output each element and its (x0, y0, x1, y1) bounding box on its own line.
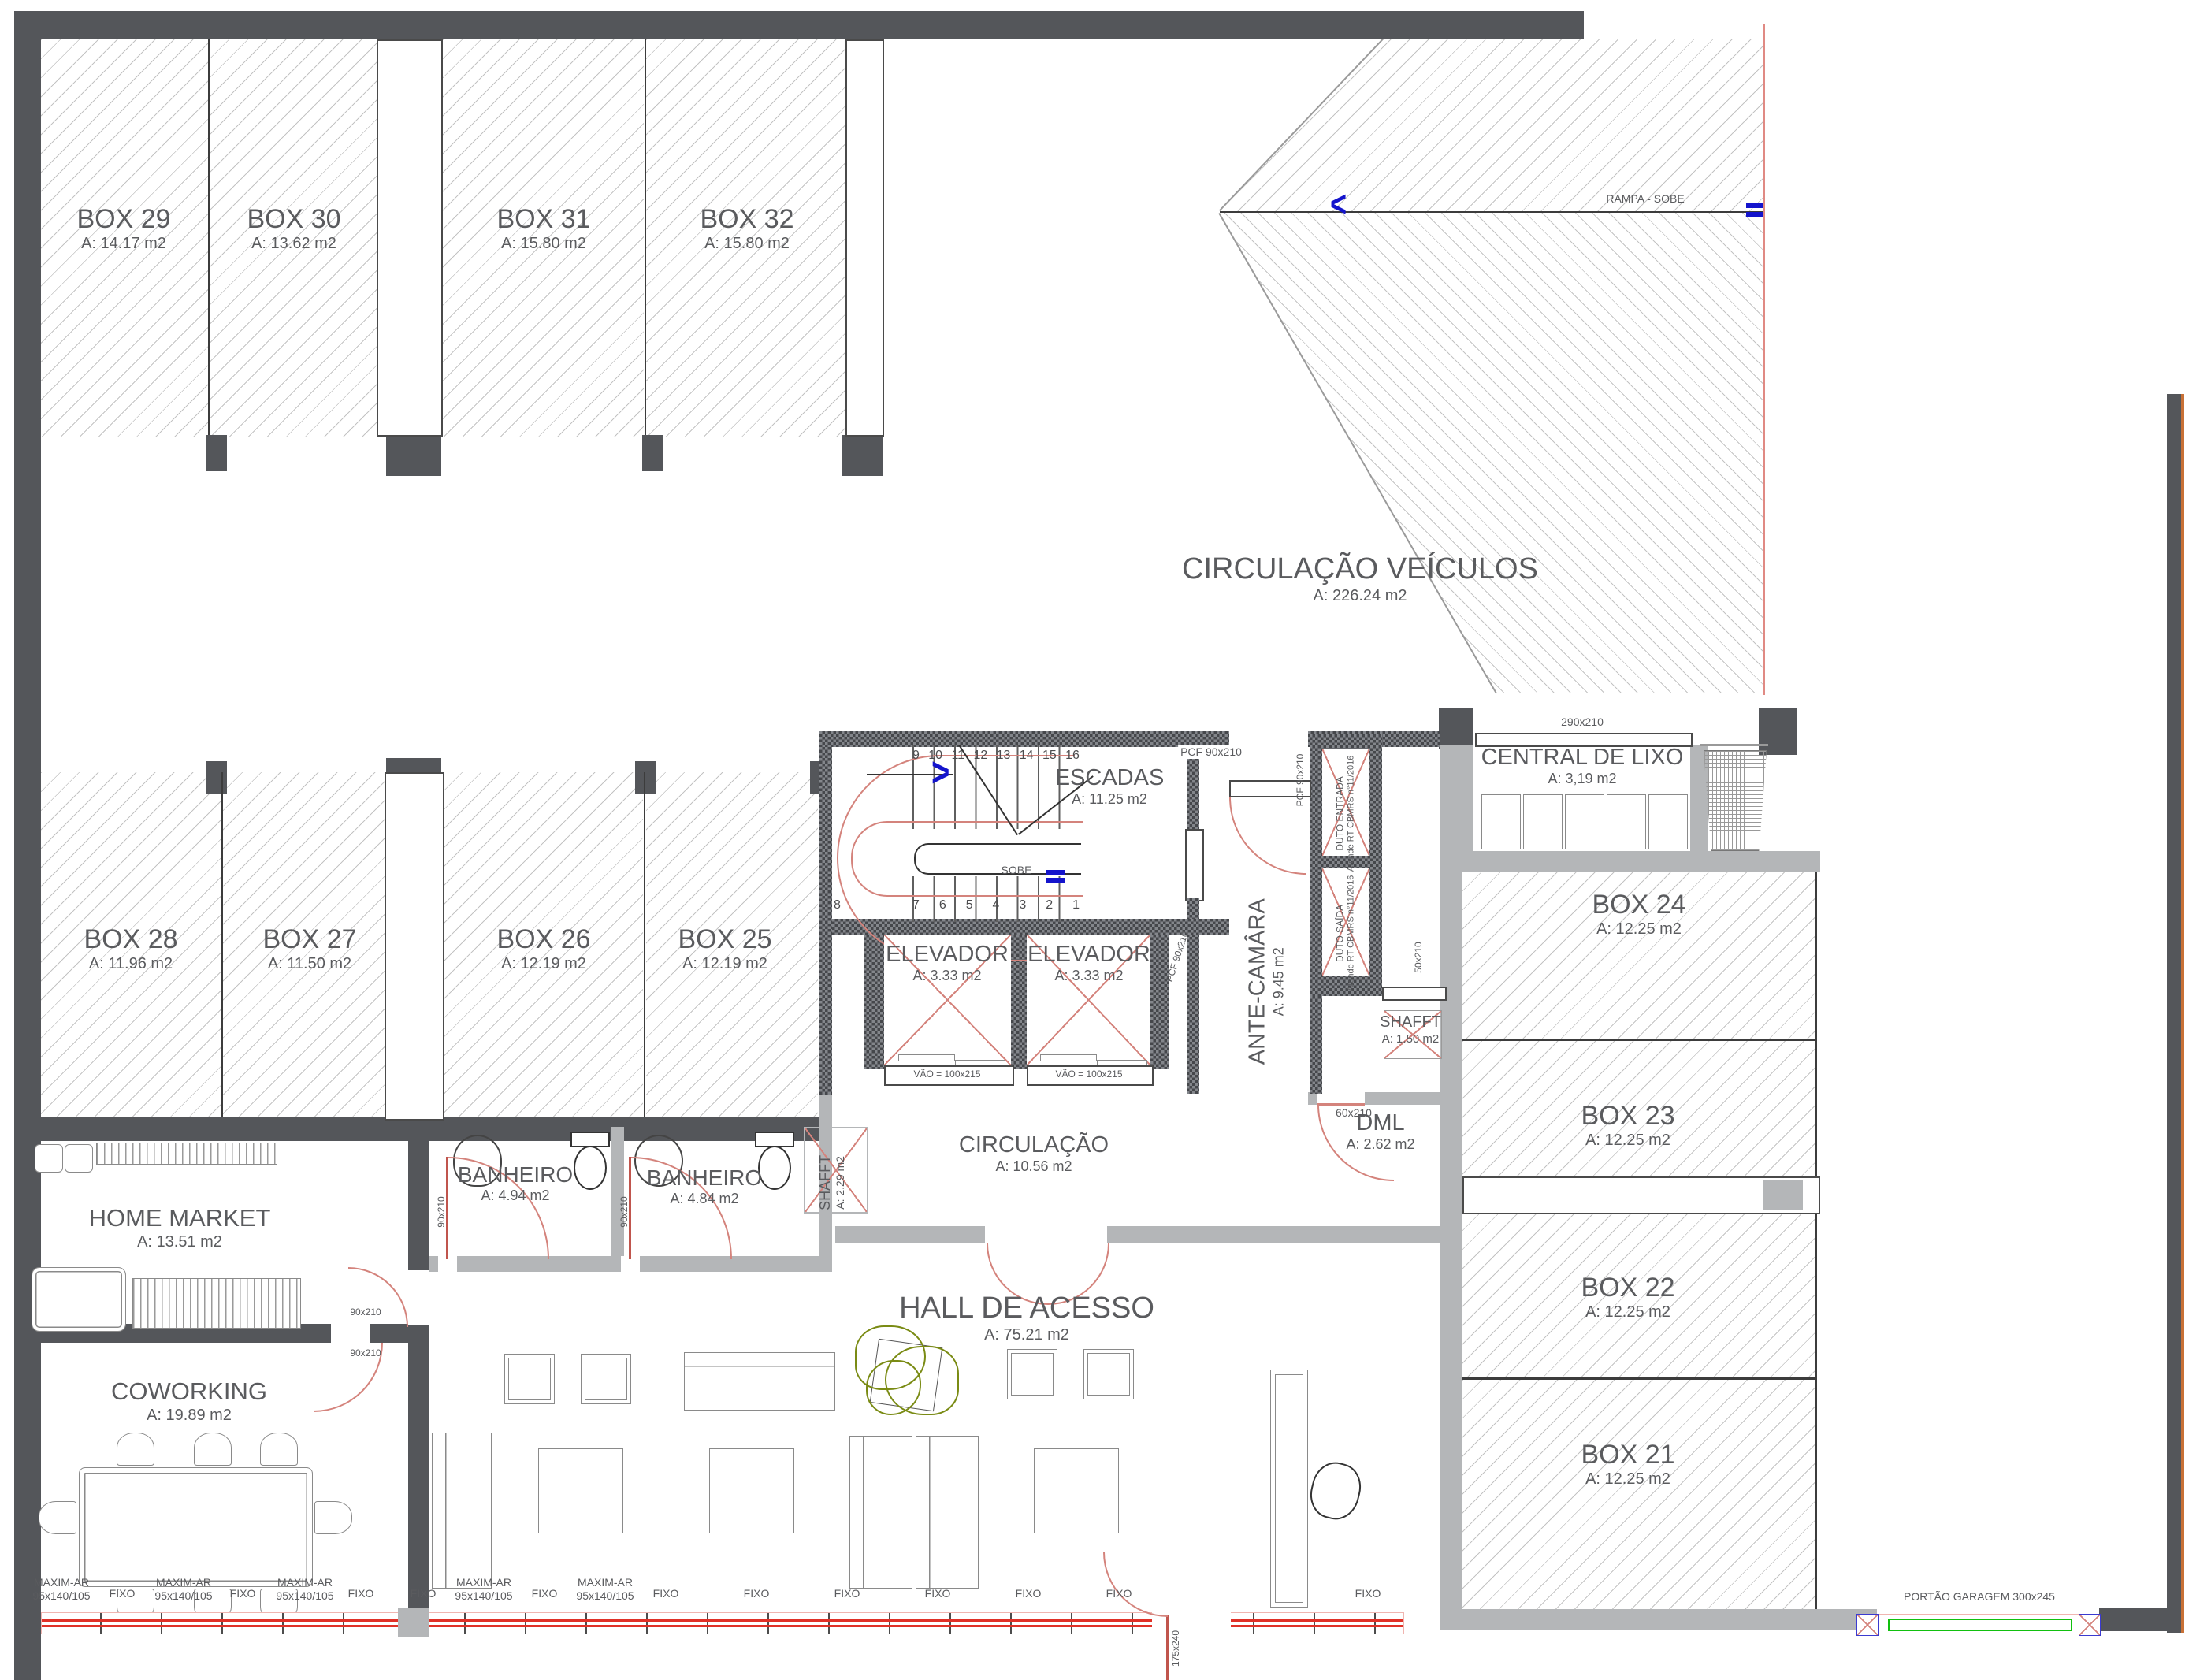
stair-number: 15 (1042, 749, 1057, 764)
room-name: ANTE-CAMÂRA (1243, 856, 1270, 1108)
wall-banheiro-bottom-a (429, 1256, 438, 1272)
window-label: FIXO (1355, 1587, 1381, 1600)
window-label: FIXO (230, 1587, 256, 1600)
elevator2-vao-label: VÃO = 100x215 (1055, 1069, 1122, 1080)
room-name: SHAFFT (1380, 1013, 1441, 1032)
elev-wall-right (1150, 935, 1169, 1069)
window-label: FIXO (348, 1587, 374, 1600)
window-size: 95x140/105 (576, 1589, 634, 1603)
room-label-shafft-small: SHAFFT A: 1.50 m2 (1380, 1013, 1441, 1046)
room-area: A: 19.89 m2 (111, 1407, 267, 1425)
room-label-banheiro-1: BANHEIRO A: 4.94 m2 (458, 1162, 573, 1204)
room-name: HOME MARKET (89, 1204, 271, 1233)
entrance-door-leaf (1166, 1615, 1169, 1680)
wall-hall-west-b (408, 1325, 429, 1617)
room-name: SHAFFT (817, 1120, 834, 1246)
partition-box30-31 (377, 39, 443, 437)
partition-box27-26 (385, 772, 444, 1121)
room-area: A: 12.19 m2 (496, 955, 590, 974)
room-name: BOX 27 (262, 924, 356, 955)
room-area: A: 12.25 m2 (1581, 1470, 1674, 1489)
room-label-elevador-2: ELEVADOR A: 3.33 m2 (1028, 941, 1150, 984)
banheiro2-toilet-tank (755, 1132, 794, 1147)
room-area: A: 2.62 m2 (1346, 1136, 1414, 1153)
window-label: FIXO (532, 1587, 558, 1600)
ramp-right-line (1763, 24, 1765, 695)
room-label-circulacao-veiculos: CIRCULAÇÃO VEÍCULOS A: 226.24 m2 (1182, 552, 1538, 605)
reception-desk (1270, 1370, 1308, 1608)
wall-hall-west-a (408, 1141, 429, 1270)
elevator2-door-leaf-a (1040, 1054, 1097, 1061)
room-name: COWORKING (111, 1377, 267, 1407)
banheiro1-toilet-tank (570, 1132, 610, 1147)
homemarket-shelf-top (96, 1143, 277, 1165)
room-area: A: 13.62 m2 (247, 235, 340, 254)
coworking-chair-8 (314, 1501, 352, 1534)
room-name: BOX 26 (496, 924, 590, 955)
room-label-box32: BOX 32 A: 15.80 m2 (700, 203, 793, 254)
lixo-bin-3 (1565, 794, 1604, 849)
floor-plan: < RAMPA - SOBE (0, 0, 2200, 1680)
homemarket-chair-1 (35, 1144, 63, 1173)
window-type: MAXIM-AR (276, 1576, 333, 1589)
wall-banheiro-divider (611, 1127, 624, 1256)
room-name: BOX 24 (1592, 889, 1685, 920)
wall-bottom-right (1440, 1609, 1877, 1630)
room-name: ESCADAS (1055, 764, 1165, 791)
window-label: MAXIM-AR95x140/105 (32, 1576, 90, 1602)
room-name: CENTRAL DE LIXO (1481, 744, 1684, 771)
lixo-bin-5 (1648, 794, 1688, 849)
lixo-bin-4 (1607, 794, 1646, 849)
coworking-chair-1 (117, 1433, 154, 1466)
window-size: 95x140/105 (154, 1589, 212, 1603)
ramp-label: RAMPA - SOBE (1606, 192, 1684, 206)
divider-box22-21 (1462, 1377, 1817, 1380)
wall-corridor-bottom-b (1107, 1226, 1442, 1243)
room-label-box24: BOX 24 A: 12.25 m2 (1592, 889, 1685, 939)
room-area: A: 13.51 m2 (89, 1233, 271, 1252)
room-area: A: 3.33 m2 (1028, 968, 1150, 984)
room-name: BANHEIRO (647, 1165, 762, 1191)
room-name: BOX 28 (84, 924, 177, 955)
hall-side-table-2 (709, 1448, 794, 1533)
room-name: BOX 30 (247, 203, 340, 235)
wall-lixo-left (1458, 745, 1473, 851)
stair-number: 3 (1019, 898, 1026, 914)
room-area: A: 2.29 m2 (834, 1120, 847, 1246)
window-type: MAXIM-AR (32, 1576, 90, 1589)
outer-wall-right-thin (2167, 394, 2181, 1633)
room-label-banheiro-2: BANHEIRO A: 4.84 m2 (647, 1165, 762, 1207)
door-label-coworking: 90x210 (350, 1347, 381, 1358)
ramp-arrow-bar-2 (1746, 212, 1763, 217)
room-name: BOX 25 (678, 924, 771, 955)
sobe-bar-1 (1046, 870, 1065, 875)
window-label: FIXO (834, 1587, 860, 1600)
window-label: FIXO (110, 1587, 136, 1600)
room-area: A: 15.80 m2 (700, 235, 793, 254)
entrance-door-size-label: 175x240 (1170, 1630, 1181, 1667)
garage-jamb-left (1856, 1614, 1879, 1636)
stair-up-chevron-icon: > (931, 749, 949, 797)
stair-number: 16 (1065, 749, 1080, 764)
wall-dml-top-a (1308, 1092, 1317, 1105)
divider-box28-27 (221, 772, 223, 1117)
hall-armchair-3 (1007, 1349, 1057, 1399)
room-area: A: 4.84 m2 (647, 1191, 762, 1207)
duct-label-saida: DUTO SAÍDA Atende RT CBMRS n°11/2016 (1335, 854, 1358, 1012)
hall-sofa-vertical-mid-2 (916, 1436, 979, 1589)
duct-note: Atende RT CBMRS n°11/2016 (1347, 854, 1358, 1012)
window-label: MAXIM-AR95x140/105 (455, 1576, 512, 1602)
door-label-50x210: 50x210 (1413, 942, 1424, 972)
wall-hall-east (1440, 745, 1462, 1611)
elevator1-door-leaf-a (898, 1054, 955, 1061)
room-label-box29: BOX 29 A: 14.17 m2 (76, 203, 170, 254)
room-label-box30: BOX 30 A: 13.62 m2 (247, 203, 340, 254)
pier-core-northeast (1439, 708, 1473, 749)
shafft-small-door-sill (1382, 987, 1447, 1001)
rightboxes-front-line (1815, 871, 1817, 1611)
stair-number-8: 8 (834, 898, 841, 913)
stair-number: 1 (1072, 898, 1080, 914)
room-name: BOX 21 (1581, 1439, 1674, 1470)
outer-wall-top (14, 11, 1584, 39)
door-label-pcf-ante: PCF 90x210 (1295, 754, 1306, 807)
banheiro1-toilet-bowl (574, 1146, 607, 1190)
stair-number: 4 (993, 898, 1000, 914)
room-name: CIRCULAÇÃO VEÍCULOS (1182, 552, 1538, 587)
room-name: ELEVADOR (1028, 941, 1150, 968)
hall-armchair-1 (504, 1354, 555, 1404)
room-area: A: 1.50 m2 (1380, 1032, 1441, 1046)
stair-number: 9 (912, 749, 920, 764)
window-label: MAXIM-AR95x140/105 (276, 1576, 333, 1602)
hall-sofa-vertical-left (432, 1433, 492, 1589)
room-label-hall: HALL DE ACESSO A: 75.21 m2 (899, 1291, 1154, 1344)
stair-sobe-label: SOBE (1002, 864, 1032, 877)
pier-mid-row-3 (635, 761, 656, 794)
outer-wall-right-orange-line (2181, 394, 2184, 1633)
window-label: FIXO (925, 1587, 951, 1600)
room-label-ante-camara: ANTE-CAMÂRA A: 9.45 m2 (1243, 856, 1287, 1108)
room-label-box23: BOX 23 A: 12.25 m2 (1581, 1100, 1674, 1150)
door-label-banheiro1: 90x210 (436, 1196, 447, 1227)
divider-box31-32 (645, 39, 646, 435)
room-area: A: 11.50 m2 (262, 955, 356, 974)
ramp-line (1220, 211, 1763, 213)
room-label-escadas: ESCADAS A: 11.25 m2 (1055, 764, 1165, 808)
window-label: FIXO (1016, 1587, 1042, 1600)
homemarket-shelf-bottom (132, 1278, 301, 1329)
room-name: BOX 23 (1581, 1100, 1674, 1132)
divider-box29-30 (208, 39, 210, 435)
hall-armchair-2 (581, 1354, 631, 1404)
room-name: BOX 22 (1581, 1272, 1674, 1303)
room-area: A: 12.25 m2 (1592, 920, 1685, 939)
coworking-chair-3 (260, 1433, 298, 1466)
room-name: CIRCULAÇÃO (959, 1132, 1109, 1158)
entrance-door-arc (1103, 1552, 1168, 1617)
pier-box23-22 (1763, 1180, 1803, 1210)
pier-window-band (398, 1608, 429, 1637)
hall-armchair-4 (1083, 1349, 1134, 1399)
door-label-homemarket: 90x210 (350, 1306, 381, 1318)
homemarket-chair-2 (65, 1144, 93, 1173)
stair-number: 7 (912, 898, 920, 914)
partition-right-of-box32 (845, 39, 884, 437)
room-label-box27: BOX 27 A: 11.50 m2 (262, 924, 356, 974)
window-size: 95x140/105 (455, 1589, 512, 1603)
homemarket-door-arc (348, 1267, 408, 1327)
outer-wall-left (14, 11, 41, 1680)
room-label-box22: BOX 22 A: 12.25 m2 (1581, 1272, 1674, 1322)
room-area: A: 12.25 m2 (1581, 1303, 1674, 1322)
room-area: A: 14.17 m2 (76, 235, 170, 254)
room-area: A: 10.56 m2 (959, 1158, 1109, 1175)
stair-number: 2 (1046, 898, 1053, 914)
coworking-chair-7 (39, 1501, 76, 1534)
wall-dml-top-b (1365, 1092, 1440, 1105)
room-label-box28: BOX 28 A: 11.96 m2 (84, 924, 177, 974)
room-label-elevador-1: ELEVADOR A: 3.33 m2 (886, 941, 1009, 984)
wall-corridor-bottom-a (835, 1226, 985, 1243)
lixo-bin-1 (1481, 794, 1521, 849)
room-name: HALL DE ACESSO (899, 1291, 1154, 1326)
divider-box24-23 (1462, 1039, 1817, 1041)
garage-jamb-right (2079, 1614, 2101, 1636)
pier-top-row-4 (842, 435, 883, 476)
dumpster-lid (1700, 744, 1768, 746)
room-area: A: 12.19 m2 (678, 955, 771, 974)
coworking-chair-2 (194, 1433, 232, 1466)
room-label-shafft-tall: SHAFFT A: 2.29 m2 (817, 1120, 847, 1246)
room-label-circulacao: CIRCULAÇÃO A: 10.56 m2 (959, 1132, 1109, 1175)
room-area: A: 11.25 m2 (1055, 791, 1165, 808)
window-type: MAXIM-AR (576, 1576, 634, 1589)
duct-wall-below (1310, 996, 1322, 1094)
room-area: A: 3.33 m2 (886, 968, 1009, 984)
lixo-bin-2 (1523, 794, 1563, 849)
stair-numbers-lower: 7 6 5 4 3 2 1 (912, 898, 1080, 914)
hall-side-table-3 (1034, 1448, 1119, 1533)
ramp-arrow-bar-1 (1746, 203, 1763, 208)
room-label-box25: BOX 25 A: 12.19 m2 (678, 924, 771, 974)
ramp-chevron-icon: < (1330, 183, 1347, 226)
sobe-bar-2 (1046, 878, 1065, 883)
wall-lixo-bottom (1462, 851, 1820, 872)
elev-wall-left (864, 935, 884, 1069)
coworking-table (79, 1467, 313, 1587)
stair-number: 6 (939, 898, 946, 914)
core-wall-top-a (819, 731, 1229, 747)
window-label: MAXIM-AR95x140/105 (154, 1576, 212, 1602)
room-area: A: 9.45 m2 (1270, 856, 1287, 1108)
window-type: MAXIM-AR (455, 1576, 512, 1589)
hall-sofa-horizontal (684, 1352, 835, 1411)
hall-sofa-vertical-mid-1 (849, 1436, 912, 1589)
door-label-pcf-stair: PCF 90x210 (1178, 745, 1244, 759)
window-label: FIXO (744, 1587, 770, 1600)
window-size: 95x140/105 (276, 1589, 333, 1603)
room-area: A: 3,19 m2 (1481, 771, 1684, 787)
banheiro2-toilet-bowl (758, 1146, 791, 1190)
homemarket-counter (32, 1267, 126, 1332)
stair-number: 5 (966, 898, 973, 914)
room-area: A: 11.96 m2 (84, 955, 177, 974)
window-type: MAXIM-AR (154, 1576, 212, 1589)
room-name: BOX 29 (76, 203, 170, 235)
pier-top-row-3 (642, 435, 663, 471)
box21-fill (1462, 1380, 1815, 1609)
core-wall-stair-right-a (1187, 747, 1199, 829)
window-size: 95x140/105 (32, 1589, 90, 1603)
garage-door-label: PORTÃO GARAGEM 300x245 (1904, 1590, 2055, 1604)
dumpster (1704, 750, 1767, 851)
pier-top-row-2 (386, 435, 441, 476)
dml-door-leaf (1317, 1103, 1365, 1106)
core-wall-left (819, 747, 832, 1095)
window-label: FIXO (653, 1587, 679, 1600)
room-label-box31: BOX 31 A: 15.80 m2 (496, 203, 590, 254)
stair-right-door-sill (1185, 829, 1204, 901)
pier-mid-row-1 (206, 761, 227, 794)
room-area: A: 15.80 m2 (496, 235, 590, 254)
window-label: MAXIM-AR95x140/105 (576, 1576, 634, 1602)
room-label-home-market: HOME MARKET A: 13.51 m2 (89, 1204, 271, 1251)
stair-number: 14 (1020, 749, 1034, 764)
stair-number: 12 (973, 749, 987, 764)
room-area: A: 4.94 m2 (458, 1188, 573, 1204)
pier-top-row-1 (206, 435, 227, 471)
door-label-60x210: 60x210 (1336, 1106, 1372, 1120)
ramp-lower-fill (1220, 213, 1763, 693)
corner-wall-bottom-right (2099, 1608, 2181, 1631)
door-label-banheiro2: 90x210 (619, 1196, 630, 1227)
room-name: BOX 31 (496, 203, 590, 235)
divider-box26-25 (644, 772, 645, 1117)
room-name: BOX 32 (700, 203, 793, 235)
door-label-290x210: 290x210 (1561, 715, 1604, 729)
wall-midrow-bottom (14, 1117, 819, 1141)
duct-name: DUTO SAÍDA (1335, 854, 1347, 1012)
room-area: A: 75.21 m2 (899, 1326, 1154, 1345)
reception-chair (1305, 1458, 1366, 1525)
window-label: FIXO (1106, 1587, 1132, 1600)
room-label-coworking: COWORKING A: 19.89 m2 (111, 1377, 267, 1425)
room-label-box21: BOX 21 A: 12.25 m2 (1581, 1439, 1674, 1489)
room-name: ELEVADOR (886, 941, 1009, 968)
pier-right-lane (1759, 708, 1797, 755)
elevator1-vao-label: VÃO = 100x215 (913, 1069, 980, 1080)
room-name: BANHEIRO (458, 1162, 573, 1188)
hall-side-table-1 (538, 1448, 623, 1533)
window-label: FIXO (411, 1587, 437, 1600)
room-label-central-lixo: CENTRAL DE LIXO A: 3,19 m2 (1481, 744, 1684, 787)
room-area: A: 226.24 m2 (1182, 587, 1538, 606)
garage-door-panel (1888, 1619, 2072, 1631)
stair-number: 13 (997, 749, 1011, 764)
room-area: A: 12.25 m2 (1581, 1132, 1674, 1150)
room-label-box26: BOX 26 A: 12.19 m2 (496, 924, 590, 974)
